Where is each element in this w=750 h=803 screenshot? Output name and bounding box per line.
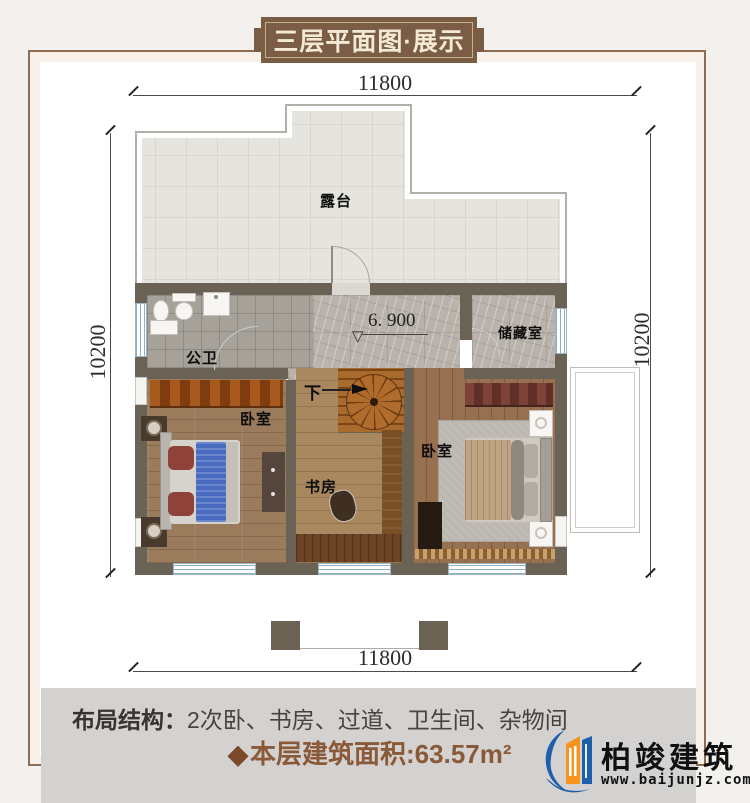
wardrobe-left [150,380,283,408]
elevation-underline [362,334,428,335]
storage-label: 储藏室 [498,323,543,343]
window-bottom-1 [173,563,256,575]
layout-structure-value: 2次卧、书房、过道、卫生间、杂物间 [187,707,568,733]
roof-outline-inner [575,372,635,528]
bed-left-blanket [196,442,226,522]
diamond-icon: ◆ [228,739,248,769]
study-label: 书房 [305,476,337,497]
stairs-center-pole [370,398,378,406]
nightstand-right-bottom-decor [535,527,547,539]
bed-left-footboard [226,442,238,522]
pillar-right [419,621,448,650]
dim-line-left [110,133,111,577]
elevation-triangle-icon: ▽ [352,327,364,345]
wall-top-right [370,283,567,295]
window-bottom-2 [318,563,391,575]
dim-left-value: 10200 [85,317,109,387]
floor-area-label: 本层建筑面积: [250,739,415,769]
dim-right-value: 10200 [629,305,653,375]
bathroom-label: 公卫 [186,347,218,368]
window-storage-right [555,308,567,354]
bedroom-left-label: 卧室 [240,408,272,429]
window-bathroom-left [135,303,147,357]
nightstand-right-top-decor [535,417,547,429]
elevation-value: 6. 900 [368,310,416,332]
bed-left-pillow-1 [168,446,194,470]
bedroomR-bottom-trim [415,549,555,559]
toilet-tank [172,293,196,302]
dresser-left-knob-1 [271,468,275,472]
bed-right-blanket [465,440,511,520]
bath-mat [153,300,169,322]
floor-area-value: 63.57m² [415,739,512,769]
stairs-down-line [322,389,350,391]
window-bottom-3 [448,563,526,575]
window-bedroomR-right [555,516,567,547]
dresser-left-knob-2 [271,492,275,496]
bed-right-bolster [511,440,524,520]
pillar-connector-line [300,648,419,649]
logo-website-url: www.baijunjz.com [601,772,750,788]
bed-right-headboard [540,438,552,522]
logo-icon [540,726,600,796]
stairs-down-label: 下 [304,379,322,404]
page-title: 三层平面图·展示 [273,22,464,58]
toilet-bowl [175,302,193,320]
cabinet-right-dark [418,502,442,550]
bedroom-right-label: 卧室 [421,440,453,461]
wall-storage-west [460,295,472,340]
dim-top-value: 11800 [330,70,440,96]
terrace-door-sill [332,283,370,295]
bed-left-pillow-2 [168,492,194,516]
title-banner: 三层平面图·展示 [254,17,484,63]
wall-top-left [135,283,332,295]
vanity-faucet [214,295,218,299]
window-bedroomL-left-1 [135,377,147,405]
bookshelf-study [296,534,402,562]
bed-right-pillow-2 [524,482,538,516]
logo-company-name: 柏竣建筑 [601,733,737,777]
page: 三层平面图·展示 11800 11800 10200 10200 露台 [0,0,750,803]
dim-line-bottom [133,671,637,672]
terrace-label: 露台 [320,190,352,211]
floor-area-line: ◆本层建筑面积:63.57m² [228,734,512,771]
pillar-left [271,621,300,650]
shower-tray [150,320,178,335]
layout-structure-line: 布局结构：2次卧、书房、过道、卫生间、杂物间 [72,701,568,735]
wardrobe-right [465,383,553,407]
title-banner-border: 三层平面图·展示 [265,22,473,58]
bed-right-pillow-1 [524,444,538,478]
wall-storage-south [464,368,567,379]
stairs-direction-arrow-icon [352,384,368,394]
dresser-left [262,452,285,512]
layout-structure-label: 布局结构： [72,707,187,733]
wall-bedroomL-study [286,380,296,563]
